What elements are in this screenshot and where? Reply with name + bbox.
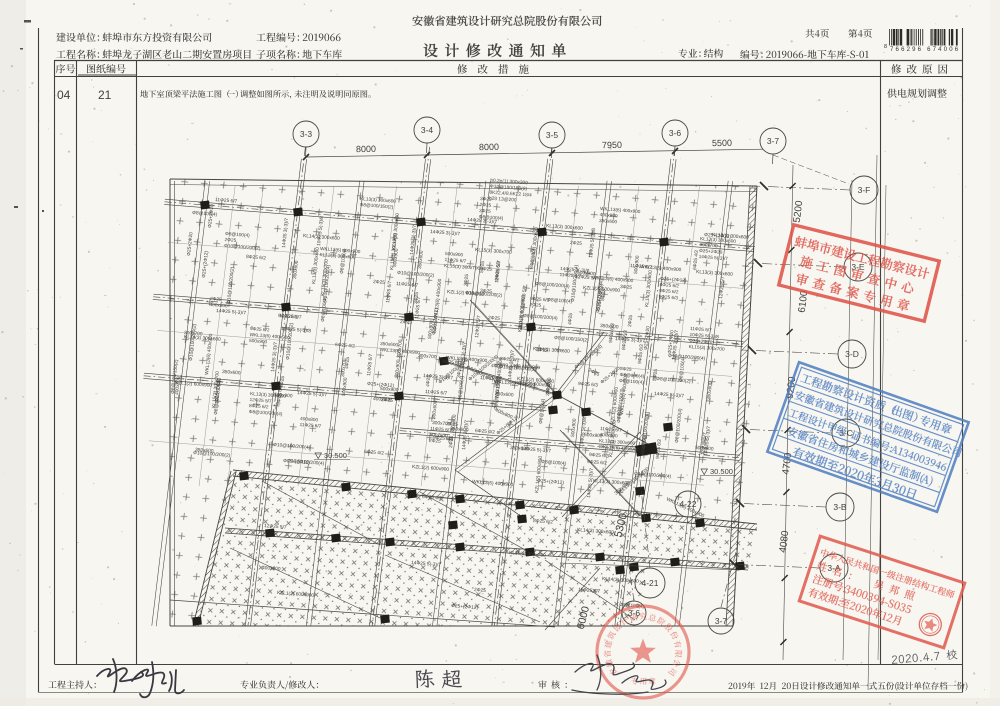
svg-text:766296 674006: 766296 674006 [890,47,960,53]
svg-text:2Φ25: 2Φ25 [488,315,501,322]
svg-text:3-F: 3-F [858,185,871,195]
svg-text:3-C: 3-C [839,428,853,438]
svg-text:30.500: 30.500 [324,451,347,460]
svg-text:3-7: 3-7 [715,616,728,626]
svg-text:3Φ25: 3Φ25 [620,284,633,291]
svg-text:3-3: 3-3 [300,129,313,139]
svg-text:7950: 7950 [602,140,622,150]
svg-text:2Φ25: 2Φ25 [210,296,222,302]
svg-text:4-21: 4-21 [641,578,658,588]
svg-text:5200: 5200 [792,200,806,224]
svg-text:2Φ25: 2Φ25 [474,587,487,594]
svg-text:04: 04 [57,88,71,102]
svg-text:8000: 8000 [356,144,376,154]
svg-text:5Φ25: 5Φ25 [620,366,632,372]
svg-text:3-6: 3-6 [669,128,682,138]
svg-text:3-7: 3-7 [767,136,780,146]
svg-text:2Φ25: 2Φ25 [224,237,236,243]
svg-text:21: 21 [98,88,112,102]
svg-text:2Φ25: 2Φ25 [479,202,491,208]
svg-text:8: 8 [884,44,887,50]
svg-text:30.500: 30.500 [710,467,733,476]
svg-text:3-5: 3-5 [546,130,559,140]
svg-text:3Φ25: 3Φ25 [480,288,493,295]
svg-text:8000: 8000 [479,142,499,152]
svg-text:4080: 4080 [778,530,792,554]
svg-text:2Φ25: 2Φ25 [429,438,441,444]
svg-text:3-A: 3-A [827,563,841,573]
svg-text:3-D: 3-D [845,349,859,359]
svg-text:3-4: 3-4 [421,125,434,135]
svg-text:2Φ25: 2Φ25 [570,240,583,247]
svg-text:2Φ25: 2Φ25 [373,279,386,286]
svg-text:3-B: 3-B [833,502,847,512]
svg-text:5500: 5500 [712,138,732,148]
svg-text:2Φ25: 2Φ25 [400,319,413,326]
svg-text:3Φ25: 3Φ25 [479,208,491,214]
svg-text:2Φ25: 2Φ25 [529,302,541,308]
svg-text:2Φ25: 2Φ25 [536,347,549,354]
